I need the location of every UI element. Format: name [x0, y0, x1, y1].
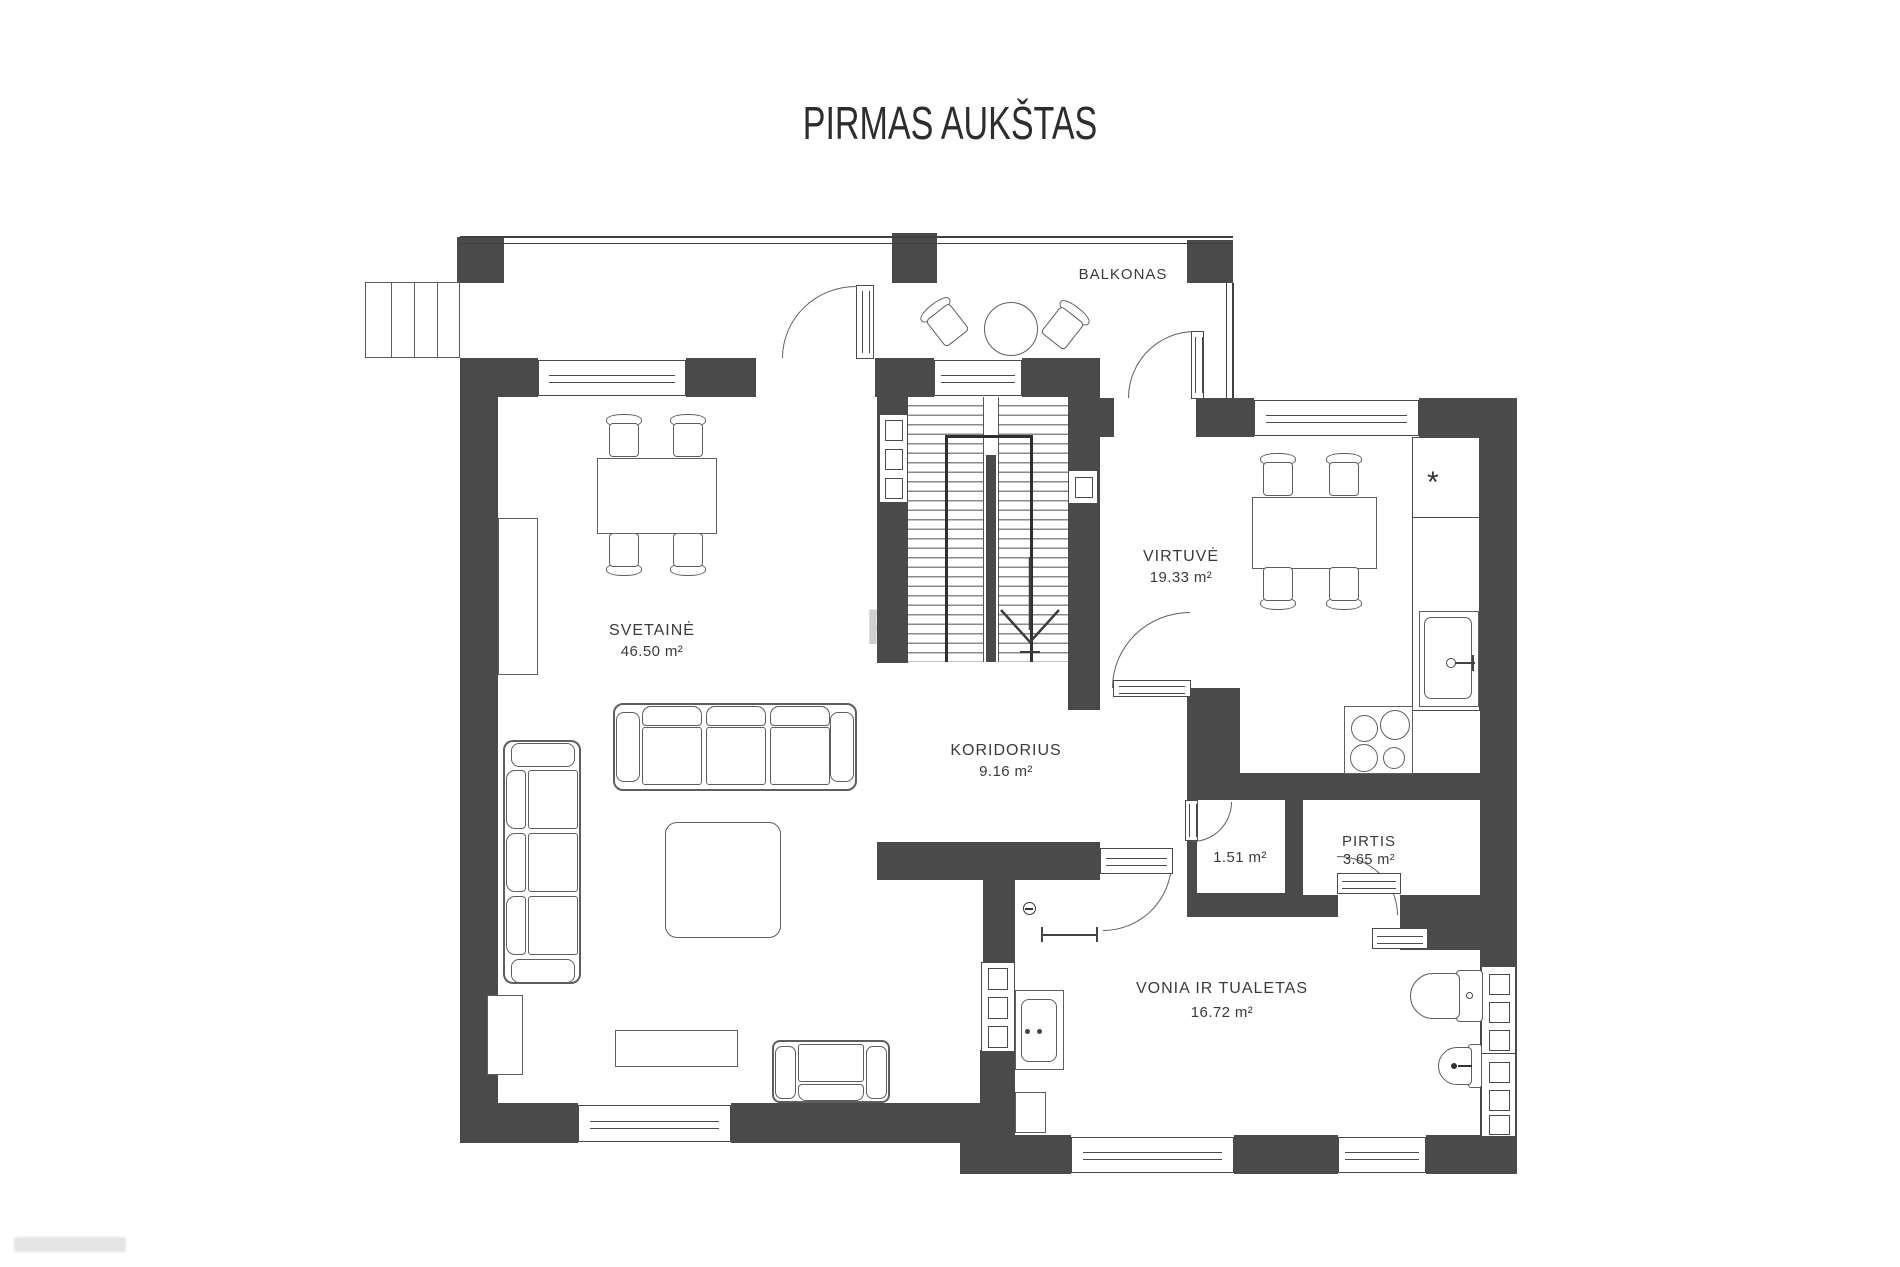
tv-bench	[615, 1030, 738, 1067]
room-label-koridorius: KORIDORIUS 9.16 m²	[906, 740, 1106, 782]
wall-south	[460, 1103, 578, 1143]
window	[934, 360, 1022, 396]
wall-niche	[1068, 470, 1098, 504]
wall-kitchen-north	[1196, 398, 1254, 437]
door-arc	[782, 286, 856, 358]
sofa	[503, 740, 581, 984]
radiator	[981, 962, 1015, 1052]
chair-icon	[917, 294, 972, 351]
wall-north	[1022, 358, 1100, 397]
armchair	[772, 1040, 890, 1103]
room-label-virtuve: VIRTUVĖ 19.33 m²	[1081, 546, 1281, 588]
room-label-balkonas: BALKONAS	[1023, 264, 1223, 285]
door-leaf	[1191, 331, 1204, 399]
door-leaf	[1100, 848, 1173, 874]
kitchen-sink	[1419, 611, 1479, 707]
chair-icon	[670, 414, 706, 458]
dining-table	[597, 458, 717, 534]
room-label-wc: 1.51 m²	[1190, 847, 1290, 868]
room-label-pirtis: PIRTIS 3.65 m²	[1319, 832, 1419, 870]
chair-icon	[1037, 297, 1092, 354]
chair-icon	[1326, 453, 1362, 497]
chair-icon	[606, 532, 642, 576]
floor-plan: PIRMAS AUKŠTAS R U	[0, 0, 1900, 1267]
wall-bath-south	[1234, 1135, 1338, 1174]
shower-rod-tick	[1041, 927, 1043, 942]
door-leaf	[856, 285, 874, 359]
window-niche	[1372, 928, 1428, 949]
door-leaf	[1185, 800, 1198, 841]
round-table	[984, 302, 1038, 356]
chair-icon	[606, 414, 642, 458]
chair-icon	[1260, 453, 1296, 497]
balcony-railing	[460, 236, 1233, 244]
floor-drain-icon	[1023, 902, 1036, 915]
watermark-smudge	[14, 1237, 126, 1252]
wall-ne-corner	[1419, 398, 1517, 437]
cooktop	[1344, 706, 1413, 774]
exterior-stairs	[365, 282, 460, 358]
wall-bath-south	[1015, 1135, 1071, 1174]
counter-symbol: *	[1427, 466, 1439, 500]
chair-icon	[1326, 566, 1362, 610]
wall-kitchen-jog	[1187, 688, 1240, 773]
window	[1338, 1137, 1426, 1173]
window	[578, 1105, 731, 1142]
wall-bath-sw	[960, 1103, 1015, 1174]
coffee-table	[665, 822, 781, 938]
washbasin	[1015, 990, 1064, 1070]
door-arc	[1192, 802, 1232, 842]
shelf	[487, 995, 523, 1075]
door-arc	[1112, 612, 1190, 688]
window	[538, 360, 686, 396]
wall-bath-south	[1426, 1135, 1517, 1174]
wall-kitchen-south	[1187, 773, 1517, 800]
radiator	[1481, 966, 1516, 1137]
wall-bath-west	[983, 880, 1015, 963]
toilet	[1408, 968, 1484, 1024]
window	[1254, 400, 1419, 436]
shower-rod-tick	[1096, 927, 1098, 942]
door-leaf	[1113, 680, 1191, 697]
wall-north	[686, 358, 756, 397]
wall-north	[875, 358, 934, 397]
sofa	[613, 703, 857, 791]
stairs-down-arrow	[995, 552, 1075, 662]
wall	[1100, 398, 1114, 437]
room-label-vonia: VONIA IR TUALETAS 16.72 m²	[1092, 977, 1352, 1025]
chair-icon	[670, 532, 706, 576]
cabinet	[498, 518, 538, 675]
wall-corridor-bath-divider	[877, 842, 1100, 880]
door-arc	[1128, 331, 1195, 398]
wall-niche	[879, 414, 908, 503]
wall-south	[731, 1103, 987, 1143]
cabinet	[1015, 1092, 1046, 1133]
balcony-railing	[1226, 283, 1234, 398]
room-label-svetaine: SVETAINĖ 46.50 m²	[552, 620, 752, 662]
shower-rod	[1042, 934, 1098, 936]
wall-pirtis-south	[1297, 895, 1338, 917]
bidet-sink	[1438, 1044, 1484, 1088]
page-title: PIRMAS AUKŠTAS	[247, 96, 1653, 150]
wall-wc-south	[1187, 893, 1303, 917]
window	[1071, 1137, 1234, 1173]
door-leaf	[1337, 873, 1401, 894]
